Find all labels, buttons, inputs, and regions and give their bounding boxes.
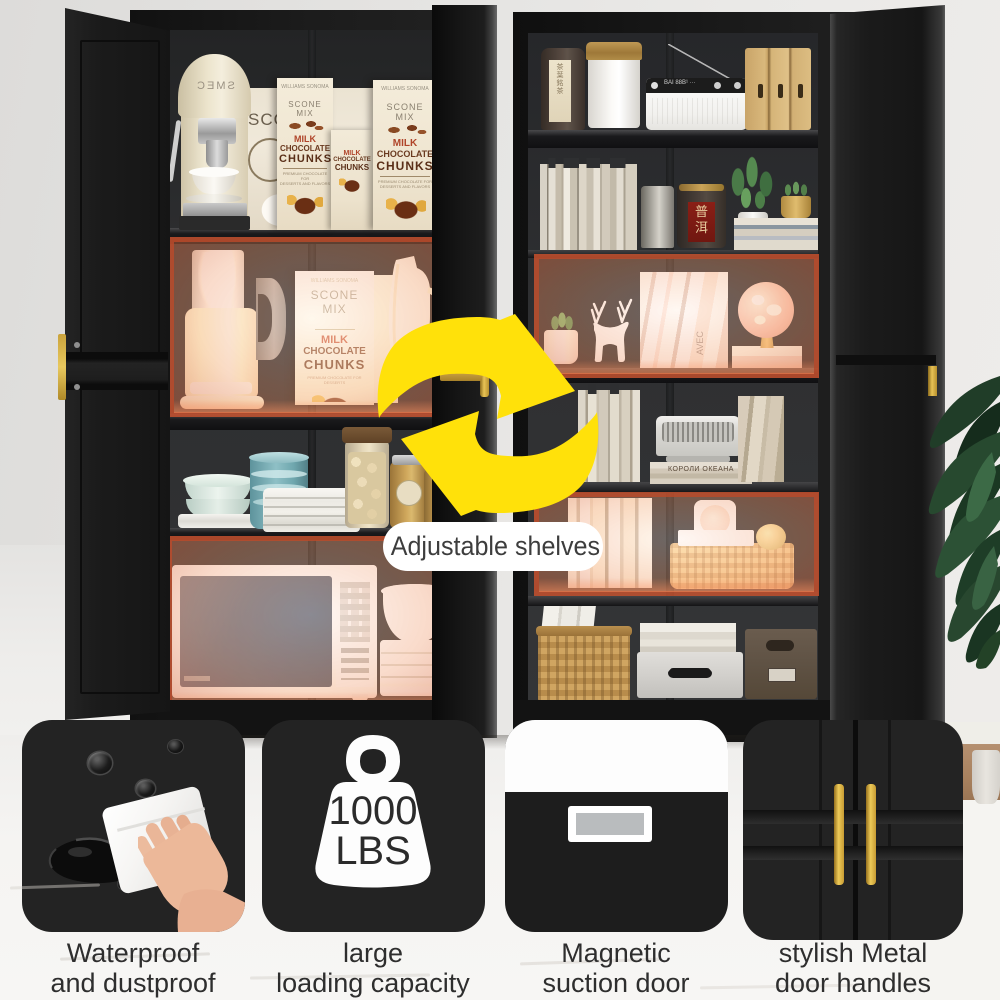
svg-text:1000: 1000 — [329, 789, 418, 833]
svg-text:LBS: LBS — [335, 829, 411, 873]
